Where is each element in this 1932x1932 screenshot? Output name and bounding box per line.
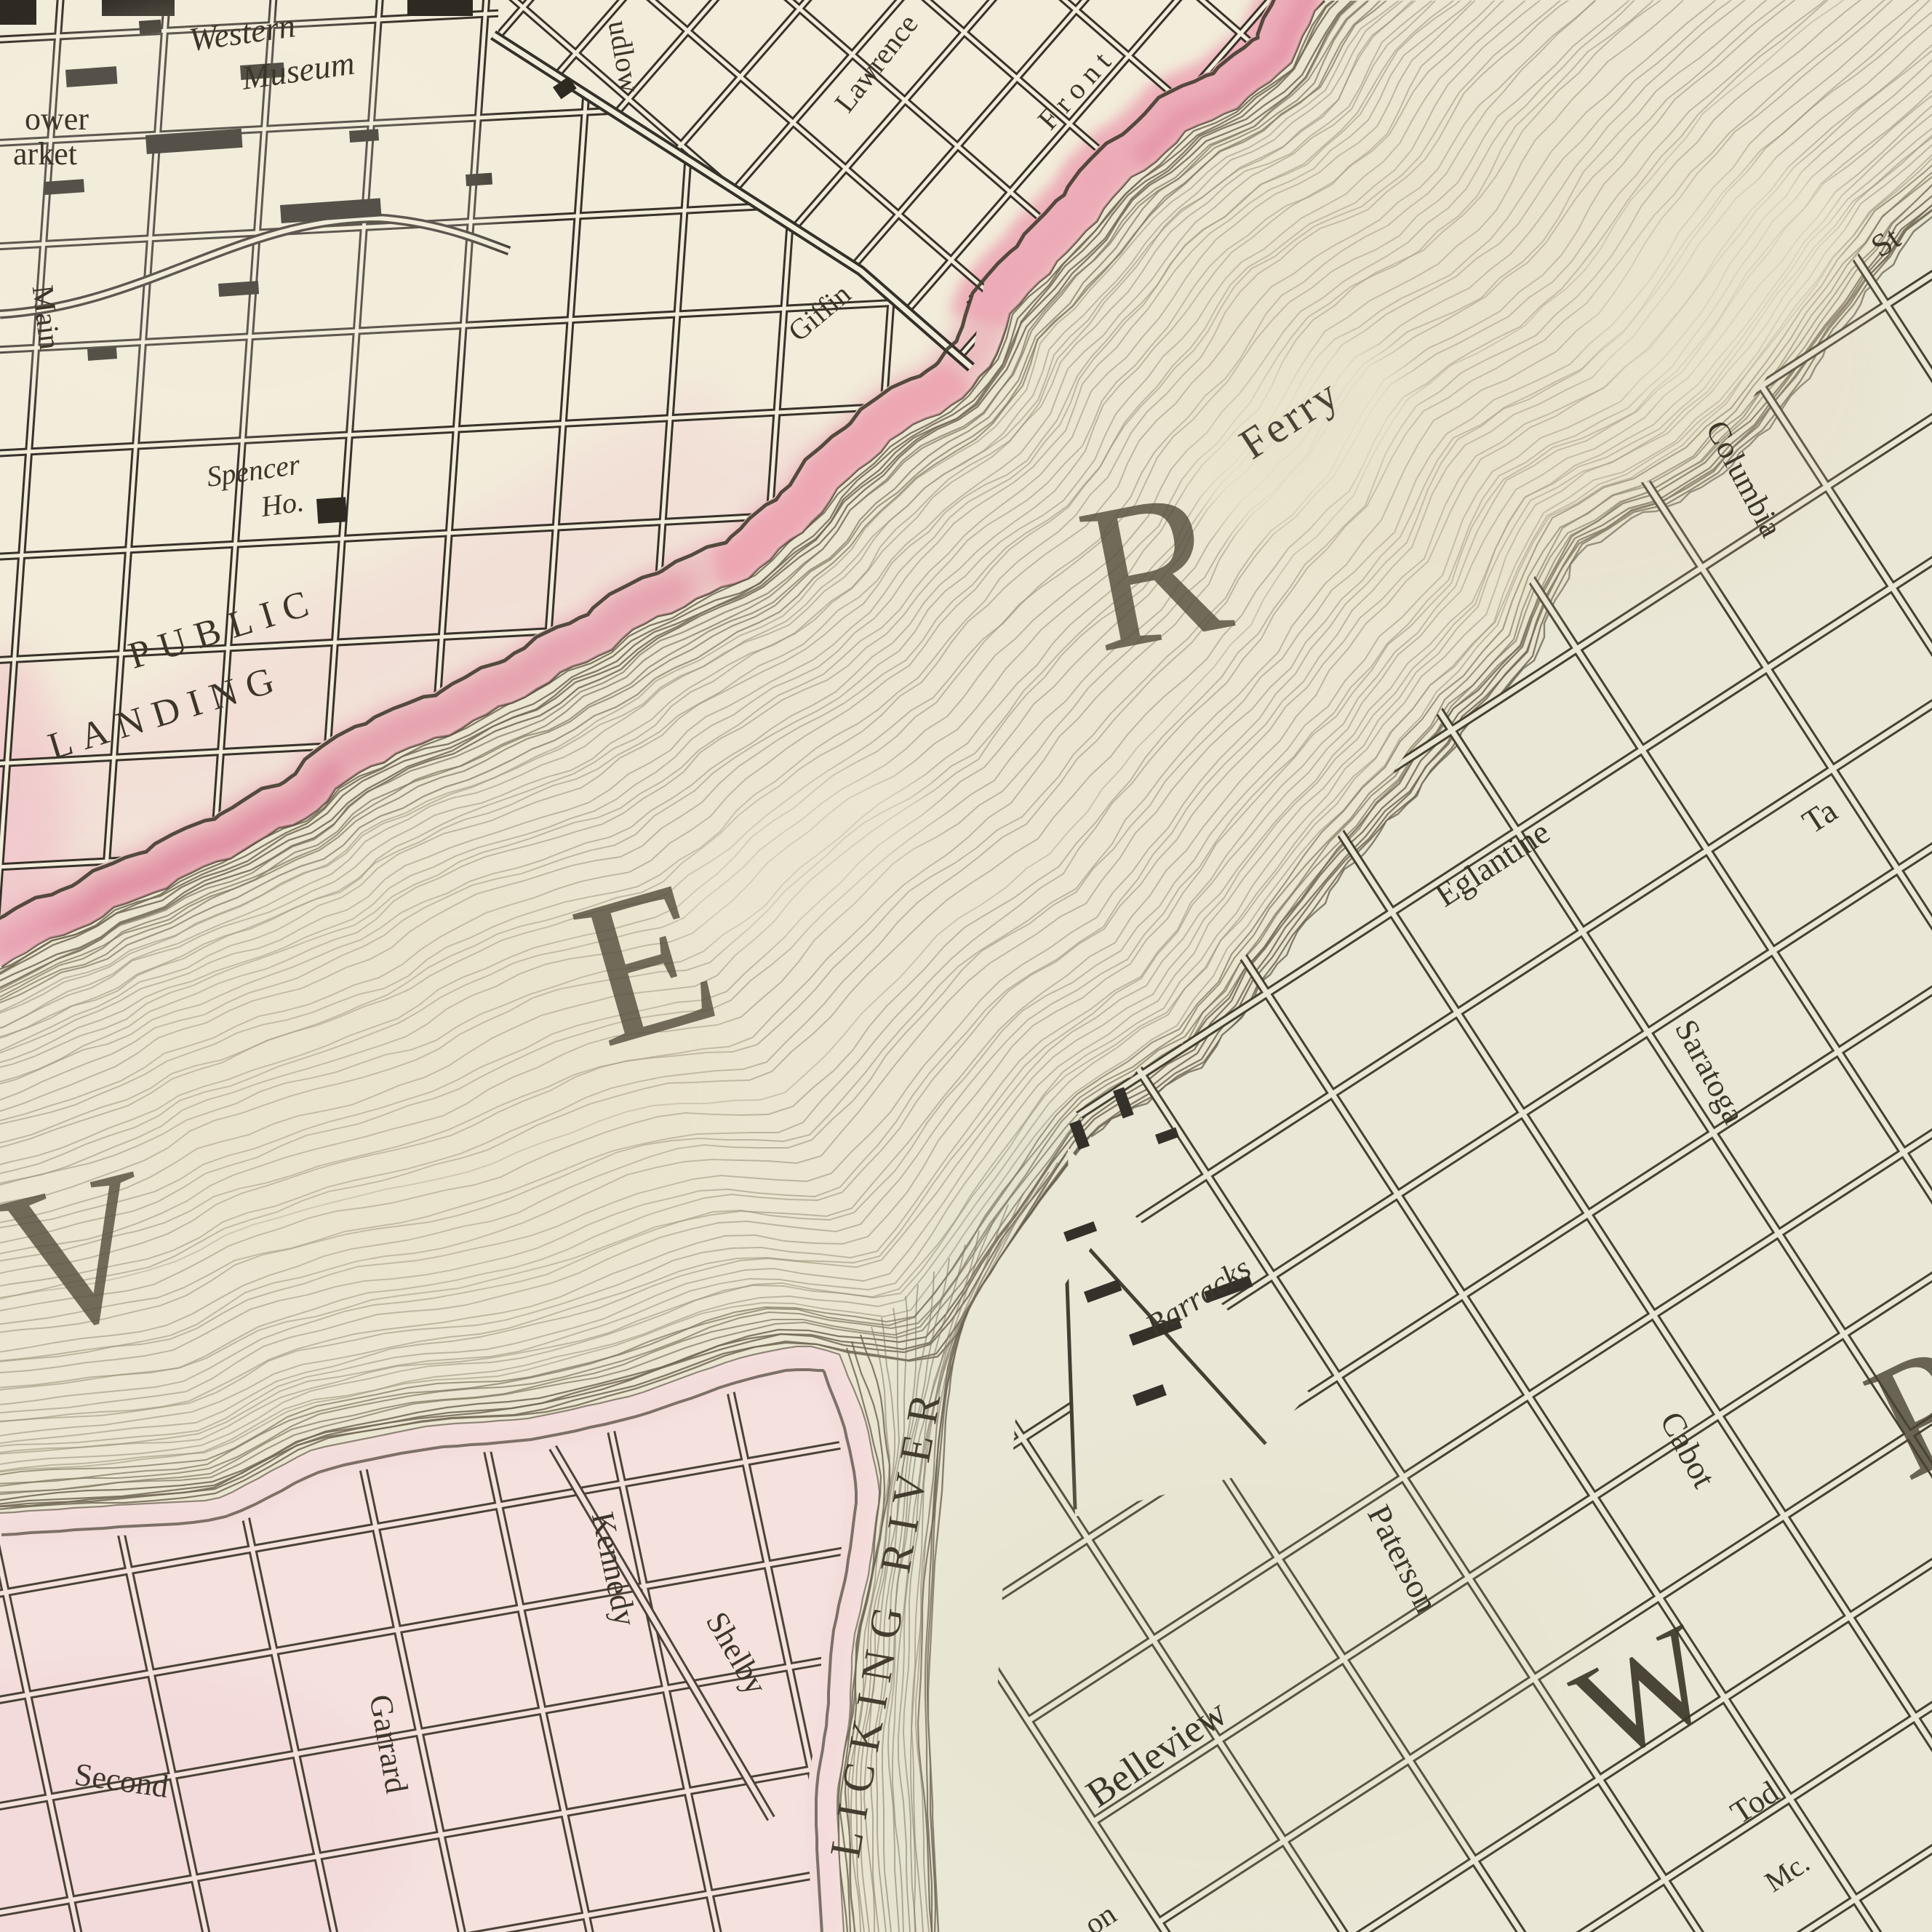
svg-text:ower: ower	[25, 101, 89, 137]
svg-text:arket: arket	[13, 136, 77, 172]
svg-text:Ho.: Ho.	[258, 484, 306, 523]
